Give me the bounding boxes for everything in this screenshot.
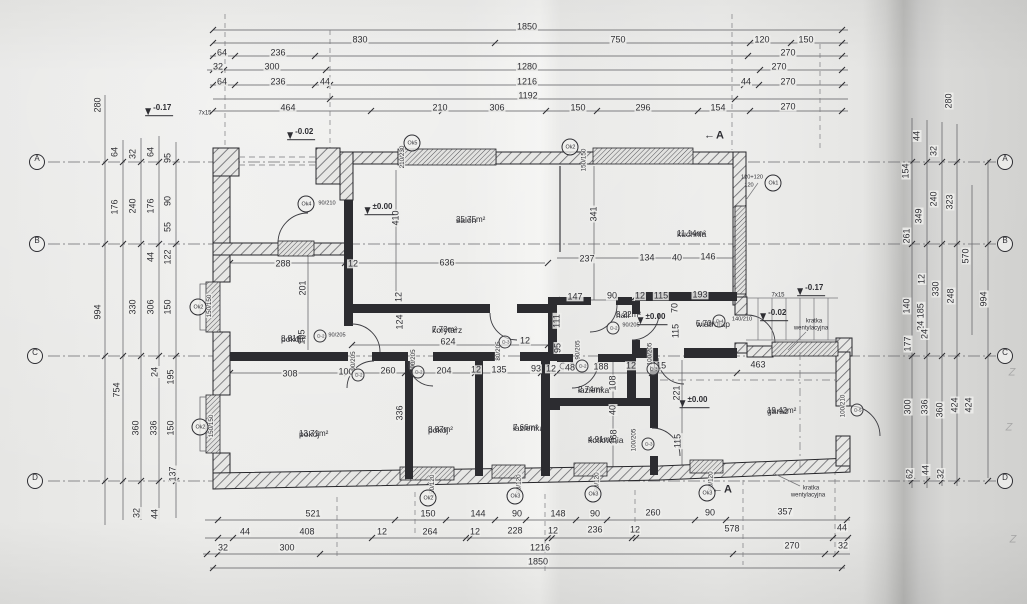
dim-label: 150: [569, 103, 586, 112]
section-marker: A: [712, 485, 732, 496]
dim-label: 424: [951, 396, 960, 413]
dim-label: 44: [147, 251, 156, 263]
dim-label: 308: [281, 369, 298, 378]
size-label: 150/150: [581, 148, 587, 172]
dim-label: 134: [638, 253, 655, 262]
dim-label: 176: [147, 197, 156, 214]
dim-label: 12: [469, 527, 481, 536]
dim-label: 12: [376, 527, 388, 536]
dim-label: 44: [239, 527, 251, 536]
grid-axis-marker: B: [997, 236, 1013, 252]
dim-label: 32: [217, 543, 229, 552]
dim-label: 115: [674, 433, 683, 449]
dim-label: 44: [922, 464, 931, 476]
size-label: 150/150: [206, 294, 212, 318]
door-marker: D-2: [576, 360, 589, 373]
dim-label: 12: [545, 364, 557, 373]
dim-label: 12: [395, 291, 404, 303]
window-marker: Ok3: [585, 486, 602, 503]
dim-label: 144: [469, 509, 486, 518]
grid-axis-marker: B: [29, 236, 45, 252]
dim-label: 300: [278, 543, 295, 552]
dim-label: 636: [438, 258, 455, 267]
window-marker: Ok2: [562, 139, 579, 156]
door-marker: D-3: [499, 336, 512, 349]
pen-mark: Z: [1009, 368, 1016, 379]
door-marker: D-5: [851, 404, 864, 417]
dim-label: 137: [169, 465, 178, 482]
section-marker: A: [704, 131, 724, 142]
dim-label: 90: [606, 291, 618, 300]
dim-label: 64: [111, 146, 120, 158]
dim-label: 32: [129, 148, 138, 160]
dim-label: 1850: [527, 557, 549, 566]
size-label: 100/205: [631, 428, 637, 452]
dim-label: 122: [164, 248, 173, 265]
dim-label: 754: [113, 381, 122, 398]
dim-label: 236: [269, 77, 286, 86]
annotation-label: 7x15: [771, 292, 786, 298]
dim-label: 12: [918, 273, 927, 285]
dim-label: 44: [151, 508, 160, 520]
dim-label: 341: [590, 205, 599, 222]
dim-label: 1280: [516, 62, 538, 71]
window-marker: Ok4: [298, 196, 315, 213]
dim-label: 120: [753, 35, 770, 44]
level-marker: -0.17: [797, 284, 825, 296]
dim-label: 464: [279, 103, 296, 112]
grid-axis-marker: C: [997, 348, 1013, 364]
dim-label: 188: [592, 362, 609, 371]
size-label: 90/205: [328, 332, 347, 338]
dim-label: 300: [904, 398, 913, 415]
dim-label: 95: [164, 152, 173, 164]
dim-label: 12: [625, 361, 637, 370]
door-marker: D-3: [647, 363, 660, 376]
pen-mark: Z: [1010, 535, 1017, 546]
dim-label: 90: [511, 509, 523, 518]
dim-label: 48: [564, 363, 576, 372]
dim-label: 64: [216, 77, 228, 86]
dim-label: 750: [609, 35, 626, 44]
dim-label: 12: [519, 336, 531, 345]
size-label: 120: [744, 182, 755, 188]
grid-axis-marker: D: [997, 473, 1013, 489]
dim-label: 408: [298, 527, 315, 536]
dim-label: 12: [347, 259, 359, 268]
dim-label: 240: [129, 197, 138, 214]
dim-label: 624: [439, 337, 456, 346]
dim-label: 12: [470, 365, 482, 374]
level-marker: ±0.00: [365, 203, 395, 215]
size-label: 90/205: [575, 340, 581, 361]
window-marker: Ok2: [420, 490, 437, 507]
dim-label: 44: [913, 130, 922, 142]
dim-label: 323: [946, 193, 955, 210]
window-marker: Ok2: [190, 299, 207, 316]
dim-label: 336: [921, 398, 930, 415]
dim-label: 108: [609, 374, 618, 391]
size-label: 150/150: [208, 414, 214, 438]
annotation-label: kratka: [805, 318, 823, 324]
dim-label: 193: [691, 290, 708, 299]
floor-plan-photo: 1850830750120150642362703230012802706423…: [0, 0, 1027, 604]
dim-label: 44: [740, 77, 752, 86]
dim-label: 1216: [516, 77, 538, 86]
door-marker: D-2: [352, 369, 365, 382]
dim-label: 270: [779, 102, 796, 111]
dim-label: 24: [921, 328, 930, 340]
dim-label: 115: [653, 291, 669, 300]
annotation-label: kratka: [802, 485, 820, 491]
dim-label: 261: [903, 227, 912, 244]
level-marker: -0.02: [760, 309, 788, 321]
dim-label: 236: [586, 525, 603, 534]
level-marker: ±0.00: [638, 313, 668, 325]
dim-label: 521: [304, 509, 321, 518]
dim-label: 201: [299, 279, 308, 296]
dim-label: 150: [167, 419, 176, 436]
annotation-label: 7x15: [198, 110, 213, 116]
dim-label: 32: [837, 541, 849, 550]
dim-label: 236: [269, 48, 286, 57]
door-arcs: [278, 213, 880, 456]
dim-label: 12: [634, 291, 646, 300]
dim-label: 424: [965, 396, 974, 413]
dim-label: 32: [930, 145, 939, 157]
level-marker: -0.17: [145, 104, 173, 116]
dim-label: 288: [274, 259, 291, 268]
level-marker: ±0.00: [680, 396, 710, 408]
dim-label: 70: [671, 302, 680, 314]
dim-label: 570: [962, 247, 971, 264]
pen-mark: Z: [1006, 423, 1013, 434]
dim-label: 24: [151, 366, 160, 378]
door-marker: D-2: [607, 322, 620, 335]
dim-label: 147: [566, 292, 583, 301]
dim-label: 330: [932, 280, 941, 297]
dim-label: 300: [263, 62, 280, 71]
dim-label: 270: [779, 77, 796, 86]
dim-label: 154: [902, 162, 911, 179]
window-marker: Ok5: [404, 135, 421, 152]
dim-label: 330: [129, 298, 138, 315]
dim-label: 90: [704, 508, 716, 517]
dim-label: 360: [132, 419, 141, 436]
dim-label: 40: [671, 253, 683, 262]
dim-label: 176: [111, 198, 120, 215]
dim-label: 150: [797, 35, 814, 44]
level-marker: -0.02: [287, 128, 315, 140]
door-marker: D-2: [412, 366, 425, 379]
dim-label: 32: [133, 507, 142, 519]
dim-label: 270: [770, 62, 787, 71]
dim-label: 264: [421, 527, 438, 536]
grid-axis-marker: A: [29, 154, 45, 170]
dim-label: 463: [749, 360, 766, 369]
dim-label: 32: [937, 468, 946, 480]
dim-label: 336: [150, 419, 159, 436]
size-label: 120+120: [740, 174, 763, 180]
dim-label: 140: [903, 297, 912, 314]
door-marker: D-3: [642, 438, 655, 451]
dim-label: 1192: [517, 91, 538, 100]
dim-label: 240: [930, 190, 939, 207]
dim-label: 270: [779, 48, 796, 57]
dim-label: 210: [431, 103, 448, 112]
dim-label: 349: [915, 207, 924, 224]
dim-label: 1850: [516, 22, 538, 31]
dim-label: 111: [553, 313, 562, 329]
size-label: 210/230: [399, 145, 405, 169]
dim-label: 32: [212, 62, 224, 71]
dim-label: 95: [554, 342, 563, 354]
dim-label: 296: [634, 103, 651, 112]
dim-label: 357: [776, 507, 793, 516]
window-marker: Ok2: [192, 419, 209, 436]
dim-label: 260: [644, 508, 661, 517]
dim-label: 64: [216, 48, 228, 57]
dim-label: 44: [319, 77, 331, 86]
dim-label: 578: [723, 524, 740, 533]
dim-label: 148: [549, 509, 566, 518]
dim-label: 12: [547, 526, 559, 535]
door-marker: D-2: [314, 330, 327, 343]
dim-label: 237: [578, 254, 595, 263]
dim-label: 306: [488, 103, 505, 112]
dim-label: 12: [629, 525, 641, 534]
grid-axis-marker: C: [27, 348, 43, 364]
window-marker: Ok1: [765, 175, 782, 192]
dim-label: 115: [672, 323, 681, 339]
dim-label: 90: [589, 509, 601, 518]
dim-label: 228: [506, 526, 523, 535]
dim-label: 204: [435, 366, 452, 375]
dim-label: 280: [94, 96, 103, 113]
dim-label: 154: [709, 103, 726, 112]
dim-label: 994: [980, 290, 989, 307]
dim-label: 64: [147, 146, 156, 158]
dim-label: 195: [167, 368, 176, 385]
dim-label: 830: [351, 35, 368, 44]
dim-label: 1216: [529, 543, 551, 552]
dim-label: 93: [530, 364, 542, 373]
dim-label: 150: [164, 298, 173, 315]
dim-label: 124: [396, 313, 405, 330]
dim-label: 260: [379, 366, 396, 375]
annotation-label: wentylacyjna: [793, 325, 829, 331]
dim-label: 90: [164, 195, 173, 207]
annotation-label: wentylacyjna: [790, 492, 826, 498]
size-label: 100/210: [840, 394, 846, 418]
dim-label: 146: [699, 252, 716, 261]
dim-label: 150: [419, 509, 436, 518]
door-marker: D-4: [713, 315, 726, 328]
grid-axis-marker: A: [997, 154, 1013, 170]
grid-axis-marker: D: [27, 473, 43, 489]
dim-label: 248: [947, 287, 956, 304]
dim-label: 40: [609, 404, 618, 416]
dim-label: 306: [147, 298, 156, 315]
dim-label: 62: [906, 468, 915, 480]
dim-label: 177: [904, 335, 913, 352]
window-marker: Ok3: [507, 488, 524, 505]
dim-label: 55: [164, 221, 173, 233]
dim-label: 270: [783, 541, 800, 550]
dim-label: 336: [396, 404, 405, 421]
dim-label: 360: [936, 401, 945, 418]
dim-label: 994: [94, 303, 103, 320]
size-label: 90/210: [318, 200, 337, 206]
dim-label: 135: [490, 365, 507, 374]
dim-label: 44: [836, 523, 848, 532]
size-label: 140/210: [731, 316, 753, 322]
dim-label: 280: [945, 92, 954, 109]
